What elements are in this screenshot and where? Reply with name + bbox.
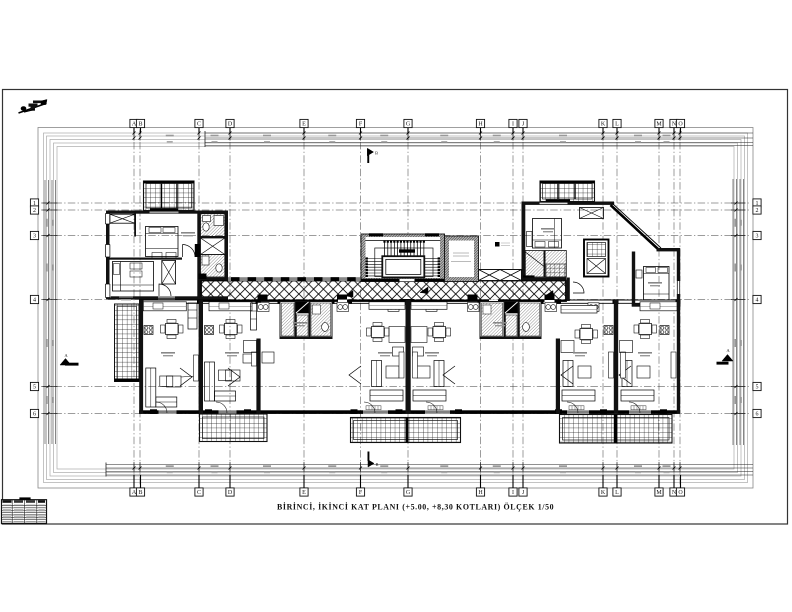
svg-text:K: K xyxy=(601,122,606,128)
svg-text:C: C xyxy=(197,122,201,128)
svg-text:G: G xyxy=(406,122,411,128)
svg-text:E: E xyxy=(302,122,306,128)
svg-text:H: H xyxy=(478,122,483,128)
svg-text:H: H xyxy=(478,490,483,496)
svg-text:5: 5 xyxy=(756,385,759,391)
svg-text:B: B xyxy=(138,122,142,128)
svg-text:E: E xyxy=(302,490,306,496)
svg-text:D: D xyxy=(228,490,233,496)
svg-text:4: 4 xyxy=(33,298,36,304)
svg-text:2: 2 xyxy=(33,208,36,214)
svg-text:K: K xyxy=(601,490,606,496)
svg-text:4: 4 xyxy=(756,298,759,304)
svg-text:O: O xyxy=(678,122,683,128)
svg-text:C: C xyxy=(197,490,201,496)
svg-text:BİRİNCİ, İKİNCİ KAT PLANI (+5.: BİRİNCİ, İKİNCİ KAT PLANI (+5.00, +8,30 … xyxy=(277,502,554,512)
svg-text:M: M xyxy=(656,122,662,128)
svg-text:L: L xyxy=(615,122,619,128)
svg-text:3: 3 xyxy=(756,234,759,240)
svg-text:3: 3 xyxy=(33,234,36,240)
svg-text:D: D xyxy=(228,122,233,128)
svg-text:6: 6 xyxy=(756,412,759,418)
svg-text:I: I xyxy=(512,122,514,128)
svg-text:I: I xyxy=(512,490,514,496)
svg-text:2: 2 xyxy=(756,208,759,214)
svg-text:B: B xyxy=(138,490,142,496)
svg-text:L: L xyxy=(615,490,619,496)
svg-text:5: 5 xyxy=(33,385,36,391)
svg-text:B: B xyxy=(376,462,379,467)
svg-text:M: M xyxy=(656,490,662,496)
svg-text:6: 6 xyxy=(33,412,36,418)
svg-text:B: B xyxy=(375,151,378,156)
svg-text:O: O xyxy=(678,490,683,496)
svg-text:G: G xyxy=(406,490,411,496)
